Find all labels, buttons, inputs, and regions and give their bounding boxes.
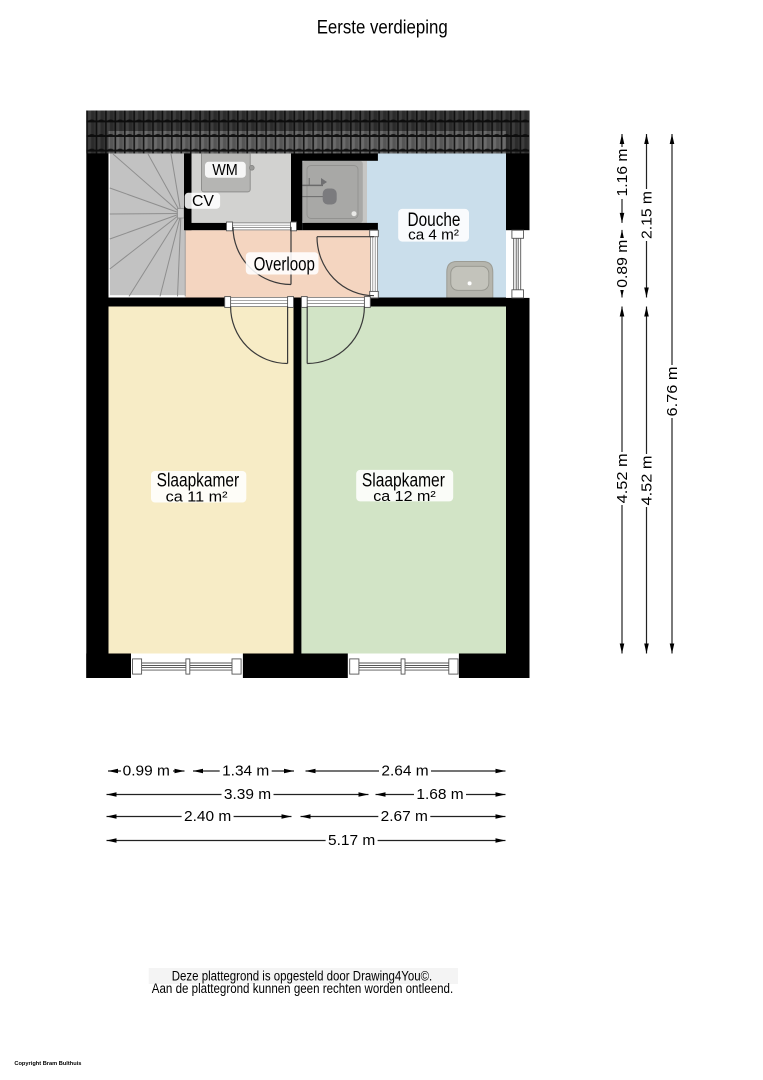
svg-text:6.76 m: 6.76 m	[665, 366, 681, 416]
svg-text:0.89 m: 0.89 m	[615, 240, 631, 288]
svg-text:5.17 m: 5.17 m	[328, 833, 375, 849]
svg-text:WM: WM	[212, 162, 238, 179]
svg-text:CV: CV	[192, 193, 215, 210]
svg-text:Slaapkamer: Slaapkamer	[157, 470, 240, 491]
svg-text:ca 12 m²: ca 12 m²	[373, 489, 436, 505]
svg-text:Aan de plattegrond kunnen geen: Aan de plattegrond kunnen geen rechten w…	[152, 981, 453, 996]
svg-text:2.15 m: 2.15 m	[640, 191, 656, 239]
svg-text:ca 4 m²: ca 4 m²	[408, 228, 459, 244]
svg-text:Eerste verdieping: Eerste verdieping	[317, 16, 448, 38]
svg-text:1.34 m: 1.34 m	[222, 763, 269, 779]
svg-text:2.64 m: 2.64 m	[381, 763, 428, 779]
svg-text:Copyright Bram Bulthuis: Copyright Bram Bulthuis	[14, 1061, 81, 1067]
svg-text:Overloop: Overloop	[254, 254, 315, 276]
svg-text:0.99 m: 0.99 m	[123, 763, 170, 779]
svg-text:3.39 m: 3.39 m	[224, 787, 271, 803]
svg-text:1.68 m: 1.68 m	[416, 787, 463, 803]
svg-text:2.67 m: 2.67 m	[381, 809, 428, 825]
svg-text:2.40 m: 2.40 m	[184, 809, 231, 825]
svg-text:1.16 m: 1.16 m	[615, 148, 631, 196]
svg-text:4.52 m: 4.52 m	[640, 455, 656, 505]
svg-text:ca 11 m²: ca 11 m²	[166, 490, 228, 506]
svg-text:4.52 m: 4.52 m	[615, 453, 631, 503]
